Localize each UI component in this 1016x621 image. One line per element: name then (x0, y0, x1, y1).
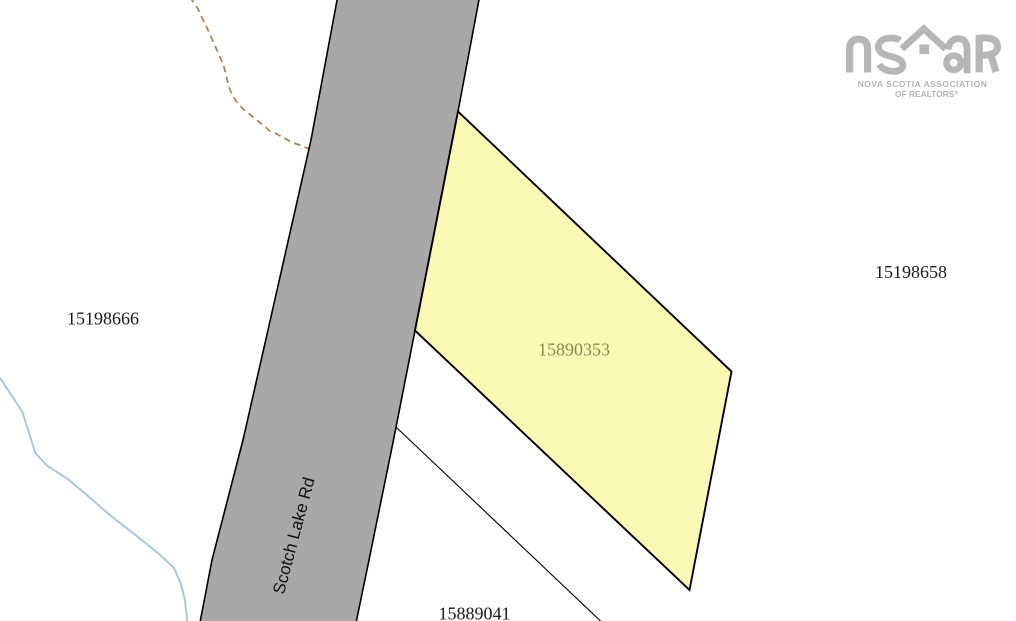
svg-text:15889041: 15889041 (439, 604, 511, 621)
svg-text:15890353: 15890353 (538, 340, 610, 360)
svg-text:15198666: 15198666 (67, 309, 139, 329)
svg-text:NOVA SCOTIA ASSOCIATION: NOVA SCOTIA ASSOCIATION (858, 79, 988, 89)
svg-text:15198658: 15198658 (875, 262, 947, 282)
svg-text:OF REALTORS®: OF REALTORS® (895, 89, 958, 99)
